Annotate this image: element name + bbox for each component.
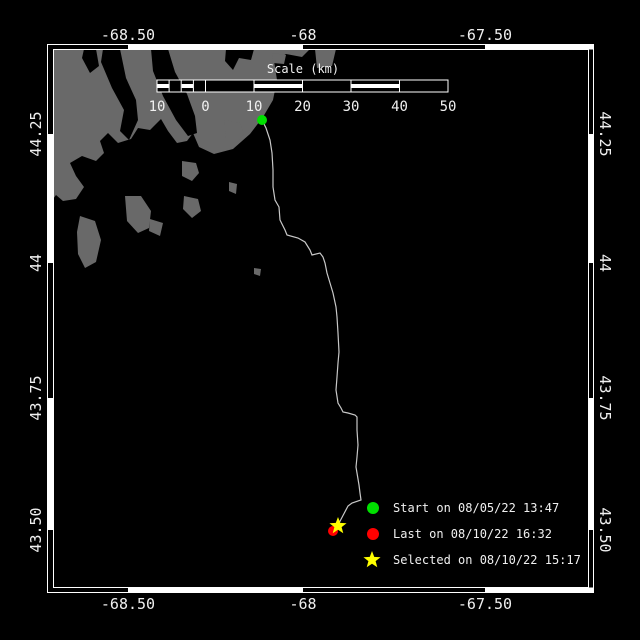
scale-tick-2: 10 — [246, 99, 263, 115]
right-band-segment-2 — [589, 398, 594, 530]
start-marker-dot[interactable] — [257, 115, 267, 125]
right-band-segment-1 — [589, 134, 594, 263]
axis-label-right-2: 44 — [596, 254, 614, 272]
axis-label-right-1: 44.25 — [596, 111, 614, 156]
axis-label-left-3: 43.75 — [27, 375, 45, 420]
legend-selected-star-icon — [363, 551, 380, 567]
legend-start-icon — [367, 502, 379, 514]
track-layer — [262, 120, 361, 525]
scale-tick-4: 30 — [343, 99, 360, 115]
scale-tick-6: 50 — [440, 99, 457, 115]
axis-label-bottom-2: -68 — [289, 595, 316, 613]
legend-last-label: Last on 08/10/22 16:32 — [393, 527, 552, 541]
scale-bar — [157, 80, 448, 92]
bottom-band-segment-1 — [128, 588, 303, 593]
axis-label-bottom-1: -68.50 — [101, 595, 155, 613]
legend-start-label: Start on 08/05/22 13:47 — [393, 501, 559, 515]
left-band-segment-2 — [48, 398, 54, 530]
axis-label-right-3: 43.75 — [596, 375, 614, 420]
track-map-window: -68.50 -68 -67.50 -68.50 -68 -67.50 44.2… — [0, 0, 640, 640]
map-canvas — [0, 0, 640, 640]
axis-label-top-1: -68.50 — [101, 26, 155, 44]
axis-label-top-3: -67.50 — [458, 26, 512, 44]
scale-tick-0: 10 — [149, 99, 166, 115]
scale-tick-3: 20 — [294, 99, 311, 115]
axis-label-top-2: -68 — [289, 26, 316, 44]
drift-track-line — [262, 120, 361, 525]
axis-label-bottom-3: -67.50 — [458, 595, 512, 613]
scale-bar-title: Scale (km) — [267, 62, 339, 76]
legend-selected-label: Selected on 08/10/22 15:17 — [393, 553, 581, 567]
axis-label-left-4: 43.50 — [27, 507, 45, 552]
left-band-segment-1 — [48, 134, 54, 263]
axis-label-right-4: 43.50 — [596, 507, 614, 552]
bottom-band-segment-2 — [485, 588, 593, 593]
top-band-segment-2 — [485, 45, 593, 50]
axis-label-left-1: 44.25 — [27, 111, 45, 156]
top-band-segment-1 — [128, 45, 303, 50]
legend-last-icon — [367, 528, 379, 540]
axis-label-left-2: 44 — [27, 254, 45, 272]
scale-tick-5: 40 — [391, 99, 408, 115]
scale-tick-1: 0 — [201, 99, 209, 115]
